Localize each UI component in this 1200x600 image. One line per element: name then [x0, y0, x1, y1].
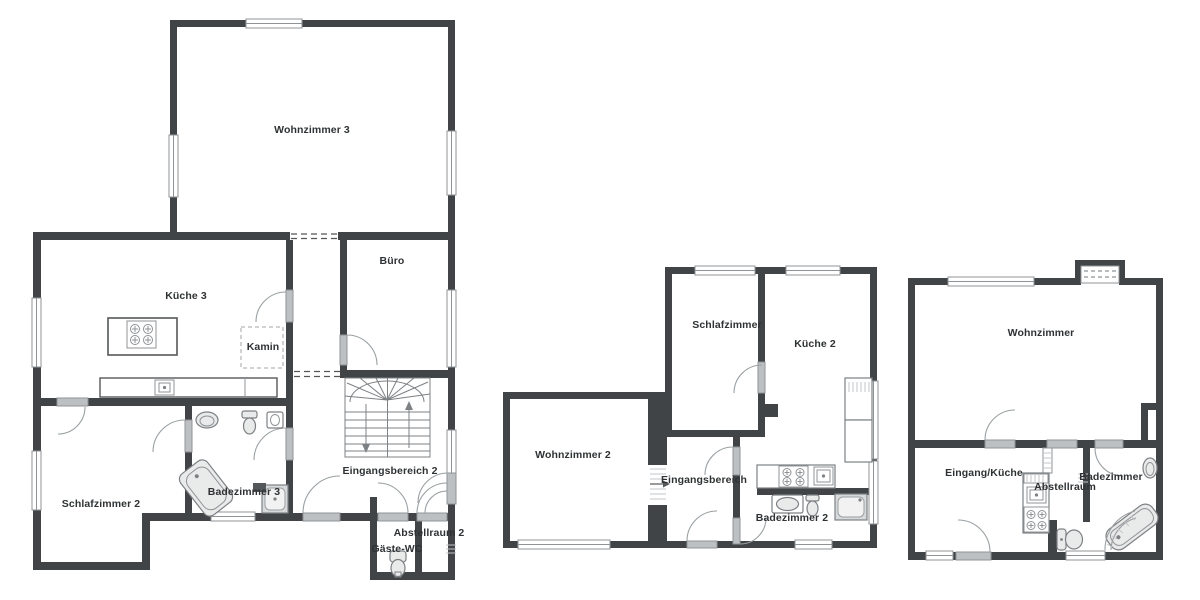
window	[869, 461, 878, 524]
window	[695, 266, 755, 275]
door-leaf	[1047, 440, 1077, 448]
door-leaf	[687, 541, 717, 548]
door-leaf	[340, 335, 347, 365]
door-leaf	[1095, 440, 1123, 448]
floorplan-stage: Wohnzimmer 3Küche 3BüroKaminSchlafzimmer…	[0, 0, 1200, 600]
door-arc	[417, 483, 447, 513]
door-arc	[687, 511, 717, 541]
window	[447, 290, 456, 367]
window	[786, 266, 840, 275]
kitchen-counter-icon	[100, 378, 277, 397]
window	[948, 277, 1034, 286]
kitchen2-fixtures	[757, 378, 872, 488]
door-arc	[740, 518, 766, 544]
window	[447, 131, 456, 195]
door-arc	[378, 483, 408, 513]
plan-left-openings	[291, 234, 342, 377]
door-arc	[347, 335, 377, 365]
bathroom3-fixtures	[177, 411, 288, 519]
door-leaf	[303, 513, 340, 521]
floorplan-canvas	[0, 0, 1200, 600]
plan-left-windows	[32, 19, 456, 521]
plan-middle-walls	[503, 267, 877, 548]
bathroom2-fixtures	[772, 494, 867, 520]
door-arc	[418, 473, 448, 503]
toilet-icon	[390, 551, 406, 577]
door-arc	[254, 428, 286, 460]
plan-middle-doors	[687, 362, 766, 548]
window	[926, 551, 953, 560]
door-arc	[1095, 448, 1123, 476]
plan-middle-windows	[518, 266, 878, 549]
door-leaf	[956, 552, 991, 560]
passage-opening	[650, 469, 670, 499]
toilet-icon	[242, 411, 257, 434]
toilet-icon	[1057, 529, 1083, 550]
fireplace-icon	[241, 327, 283, 368]
door-arc	[958, 520, 990, 552]
door-leaf	[286, 290, 293, 322]
toilet-icon	[806, 495, 819, 516]
window	[447, 430, 456, 473]
sink-icon	[196, 412, 218, 428]
door-leaf	[733, 518, 740, 544]
sink-icon	[772, 495, 803, 513]
bidet-icon	[267, 412, 283, 428]
door-arc	[425, 491, 447, 513]
door-leaf	[286, 428, 293, 460]
door-leaf	[417, 513, 447, 521]
door-leaf	[447, 473, 456, 504]
door-leaf	[378, 513, 408, 521]
door-arc	[705, 447, 733, 475]
door-leaf	[985, 440, 1015, 448]
stairs-icon	[345, 378, 430, 457]
door-leaf	[57, 398, 88, 406]
shower-icon	[835, 494, 867, 520]
window	[32, 451, 41, 510]
window	[246, 19, 302, 28]
door-arc	[985, 410, 1015, 440]
sink-icon	[814, 467, 833, 485]
radiator-icon	[253, 483, 266, 492]
window	[169, 135, 178, 197]
plan-left-walls	[33, 20, 455, 580]
cased-opening	[1043, 448, 1052, 473]
door-leaf	[758, 362, 765, 393]
window	[518, 540, 610, 549]
bay-window	[1081, 266, 1119, 283]
door-arc	[153, 420, 185, 452]
door-leaf	[185, 420, 192, 452]
door-arc	[256, 292, 286, 322]
sink-icon	[1143, 458, 1157, 478]
window	[795, 540, 832, 549]
door-arc	[58, 407, 85, 434]
window	[211, 512, 255, 521]
kitchen-unit-icon	[1023, 473, 1049, 533]
door-arc	[303, 476, 340, 513]
kitchen-island-icon	[108, 318, 177, 355]
window	[1066, 551, 1105, 560]
door-leaf	[733, 447, 740, 475]
window	[32, 298, 41, 367]
